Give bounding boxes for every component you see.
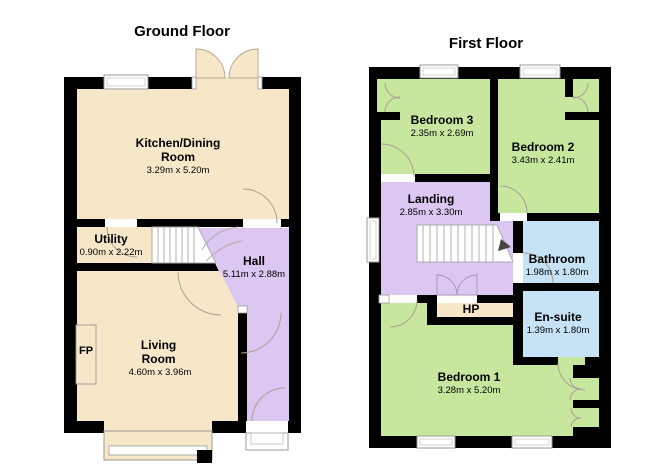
first-floor-title: First Floor — [449, 35, 523, 52]
floorplan-page: Ground Floor First Floor Kitchen/Dining … — [0, 0, 668, 472]
wall-segment — [289, 77, 301, 433]
wardrobe-wall-stub — [573, 427, 611, 436]
utility-room-area — [77, 227, 152, 263]
wall-segment — [64, 263, 219, 271]
first-floor-plan — [367, 65, 611, 448]
wall-segment — [427, 317, 523, 325]
ground-floor-plan — [64, 49, 301, 463]
door-jamb — [238, 306, 247, 313]
first-staircase — [417, 225, 513, 262]
wall-segment — [513, 221, 523, 253]
kitchen-room-area — [77, 89, 289, 219]
door-jamb — [379, 295, 389, 303]
wardrobe-wall-stub — [565, 112, 611, 120]
wardrobe-wall-stub — [369, 112, 400, 120]
ground-floor-title: Ground Floor — [134, 23, 230, 40]
wall-segment — [238, 313, 247, 421]
patio-french-doors-icon — [196, 49, 258, 78]
wall-segment — [369, 436, 611, 448]
wall-segment — [64, 219, 105, 227]
floorplan-drawing — [0, 0, 668, 472]
patio-door-opening — [196, 77, 258, 89]
wall-segment — [527, 213, 599, 221]
wall-segment — [281, 219, 289, 227]
kitchen-window — [104, 75, 148, 89]
wall-segment — [599, 67, 611, 448]
wall-segment — [415, 174, 490, 182]
wall-segment — [137, 219, 243, 227]
wall-segment — [490, 213, 500, 221]
living-room-area — [77, 271, 241, 421]
bathroom-area — [523, 221, 599, 283]
wall-segment — [64, 77, 301, 89]
door-jamb — [258, 77, 262, 89]
hotpress-area — [429, 303, 513, 317]
wall-segment — [513, 283, 523, 357]
ensuite-area — [523, 291, 599, 357]
fireplace-box — [76, 325, 96, 384]
bedroom2-wardrobe-nook — [573, 79, 593, 112]
bay-window — [104, 421, 212, 463]
door-jamb — [192, 77, 196, 89]
wall-segment — [585, 357, 599, 365]
front-door-threshold — [246, 421, 288, 450]
wall-segment — [490, 79, 498, 221]
wall-segment — [64, 77, 77, 433]
wall-segment — [369, 67, 611, 79]
wall-segment — [513, 283, 599, 291]
wardrobe-wall-stub — [565, 79, 573, 97]
wall-segment — [513, 357, 558, 365]
bedroom3-wardrobe-nook — [377, 79, 400, 112]
wardrobe-wall-stub — [573, 400, 611, 408]
wardrobe-wall-stub — [573, 365, 611, 378]
